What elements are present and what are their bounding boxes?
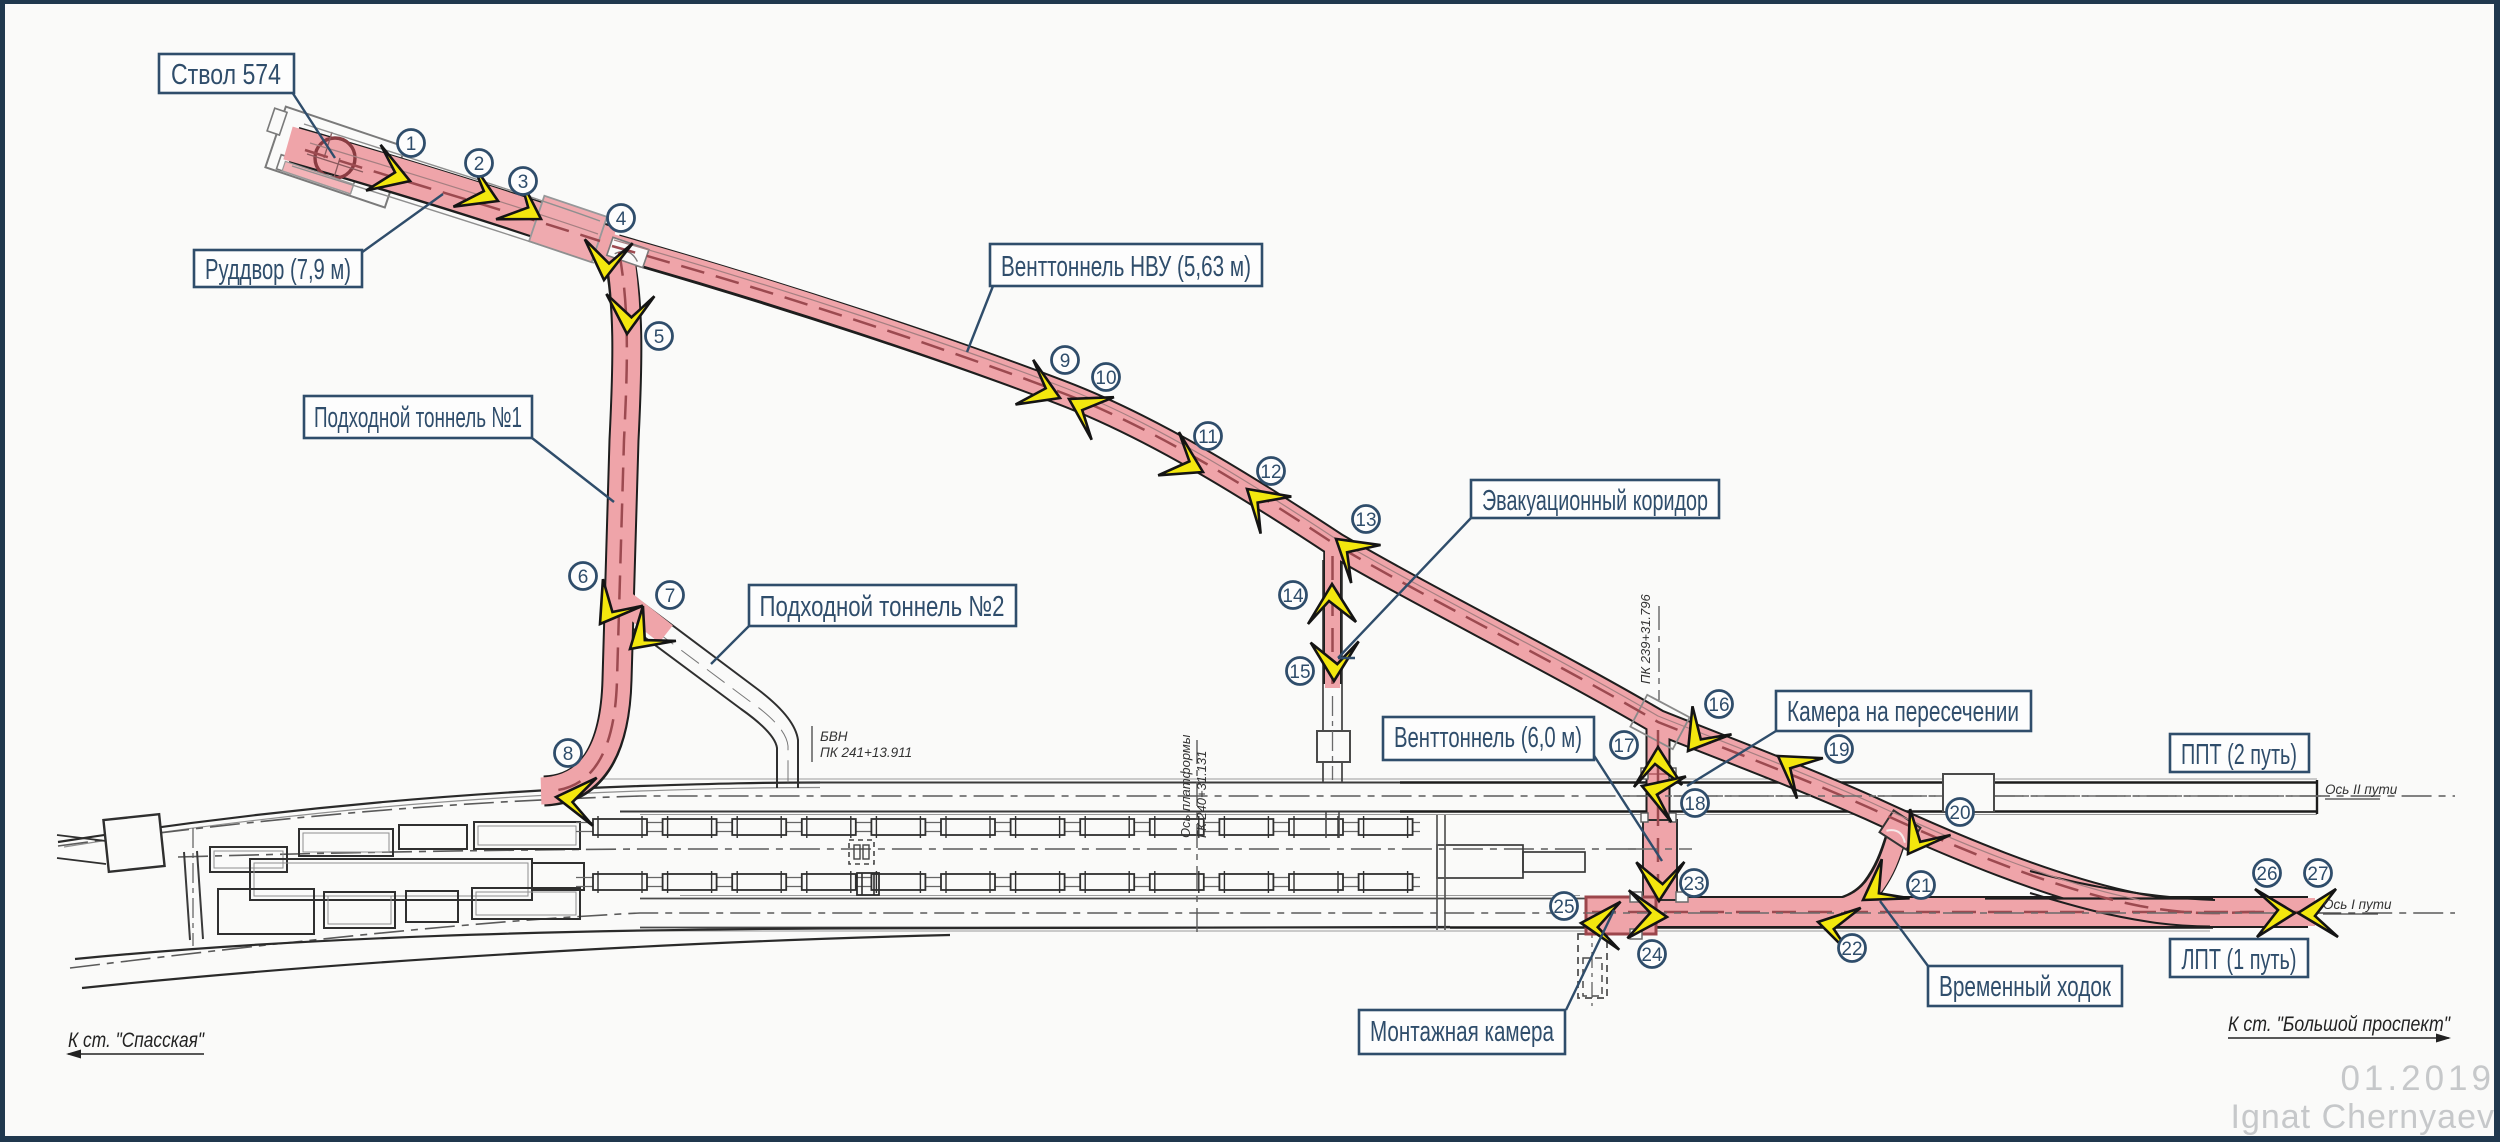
svg-text:11: 11: [1198, 427, 1218, 448]
svg-text:12: 12: [1260, 462, 1281, 483]
svg-text:ПК 239+31.796: ПК 239+31.796: [1638, 593, 1653, 684]
svg-text:Временный ходок: Временный ходок: [1939, 971, 2111, 1003]
svg-text:Камера на пересечении: Камера на пересечении: [1787, 696, 2019, 728]
svg-text:21: 21: [1910, 876, 1931, 897]
svg-text:Венттоннель (6,0 м): Венттоннель (6,0 м): [1394, 722, 1582, 754]
svg-text:25: 25: [1553, 897, 1574, 918]
svg-text:10: 10: [1095, 368, 1116, 389]
svg-text:20: 20: [1949, 803, 1970, 824]
svg-text:2: 2: [474, 154, 485, 175]
svg-text:Венттоннель НВУ (5,63 м): Венттоннель НВУ (5,63 м): [1001, 251, 1251, 283]
svg-text:К ст. "Спасская": К ст. "Спасская": [68, 1029, 205, 1052]
svg-text:3: 3: [518, 172, 529, 193]
svg-text:27: 27: [2307, 864, 2328, 885]
svg-text:8: 8: [563, 744, 574, 765]
svg-text:4: 4: [616, 209, 627, 230]
svg-text:24: 24: [1641, 945, 1663, 966]
svg-text:ППТ (2 путь): ППТ (2 путь): [2181, 739, 2297, 771]
svg-text:ЛПТ (1 путь): ЛПТ (1 путь): [2182, 944, 2297, 976]
svg-text:7: 7: [665, 586, 676, 607]
svg-text:01.2019: 01.2019: [2340, 1059, 2495, 1098]
svg-text:23: 23: [1683, 874, 1704, 895]
svg-text:5: 5: [654, 327, 665, 348]
svg-text:15: 15: [1289, 662, 1310, 683]
svg-text:ГК 240+31.131: ГК 240+31.131: [1194, 751, 1209, 838]
svg-text:1: 1: [406, 134, 417, 155]
svg-text:Подходной тоннель №1: Подходной тоннель №1: [314, 402, 522, 434]
svg-text:26: 26: [2256, 864, 2277, 885]
svg-text:Подходной тоннель №2: Подходной тоннель №2: [760, 591, 1005, 623]
svg-text:18: 18: [1684, 794, 1705, 815]
svg-text:ПК 241+13.911: ПК 241+13.911: [820, 745, 912, 760]
svg-text:6: 6: [578, 567, 589, 588]
svg-text:БВН: БВН: [820, 729, 848, 744]
svg-text:13: 13: [1355, 510, 1376, 531]
svg-text:Ствол 574: Ствол 574: [171, 59, 281, 91]
svg-text:К ст. "Большой проспект": К ст. "Большой проспект": [2228, 1013, 2451, 1036]
svg-text:9: 9: [1060, 351, 1071, 372]
svg-text:Монтажная камера: Монтажная камера: [1370, 1016, 1555, 1048]
svg-text:22: 22: [1841, 939, 1862, 960]
svg-text:Ось платформы: Ось платформы: [1178, 734, 1193, 838]
svg-text:Ось II пути: Ось II пути: [2325, 782, 2398, 797]
svg-text:14: 14: [1282, 586, 1304, 607]
svg-text:Эвакуационный коридор: Эвакуационный коридор: [1482, 485, 1708, 517]
svg-text:Руддвор (7,9 м): Руддвор (7,9 м): [205, 254, 351, 286]
svg-text:17: 17: [1613, 736, 1634, 757]
svg-text:16: 16: [1708, 695, 1729, 716]
svg-text:Ось I пути: Ось I пути: [2323, 897, 2392, 912]
svg-text:19: 19: [1828, 740, 1849, 761]
svg-text:Ignat Chernyaev: Ignat Chernyaev: [2231, 1098, 2496, 1136]
